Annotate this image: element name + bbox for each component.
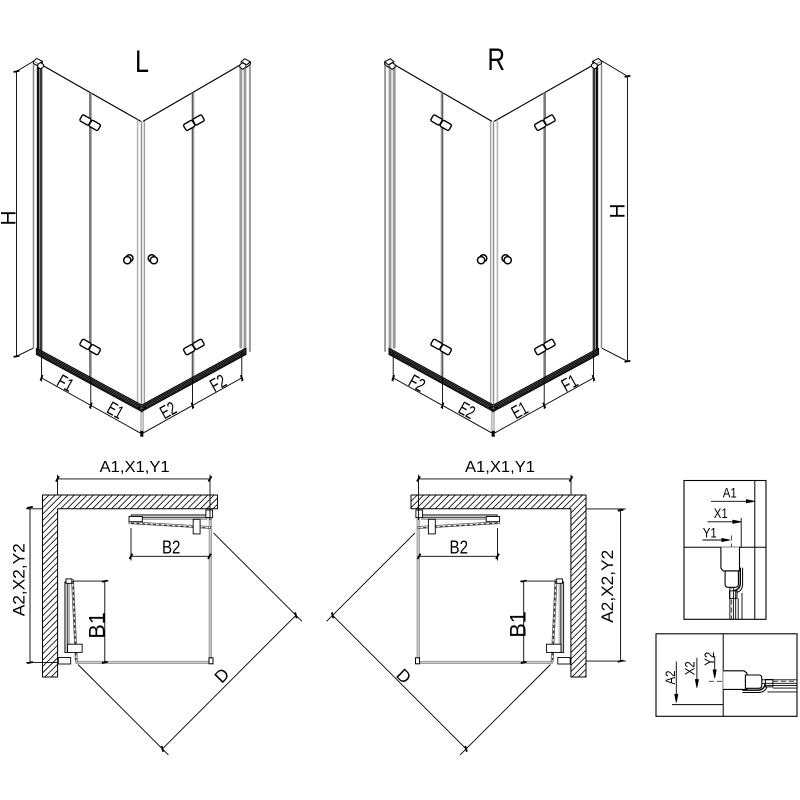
svg-text:B1: B1 [84,612,109,639]
svg-text:B2: B2 [450,537,469,557]
svg-text:X1: X1 [714,505,728,521]
svg-text:A1: A1 [723,484,737,500]
svg-text:R: R [487,41,505,77]
svg-text:A2,X2,Y2: A2,X2,Y2 [11,543,29,616]
svg-text:B1: B1 [505,611,530,638]
svg-text:L: L [135,43,149,79]
svg-text:A1,X1,Y1: A1,X1,Y1 [100,459,170,476]
svg-text:H: H [0,211,21,226]
svg-text:A2: A2 [662,670,678,684]
svg-text:Y1: Y1 [703,524,717,540]
svg-text:A2,X2,Y2: A2,X2,Y2 [599,550,617,623]
svg-text:A1,X1,Y1: A1,X1,Y1 [465,459,535,476]
svg-text:B2: B2 [162,537,181,557]
svg-text:X2: X2 [681,661,697,675]
svg-text:H: H [607,204,630,219]
